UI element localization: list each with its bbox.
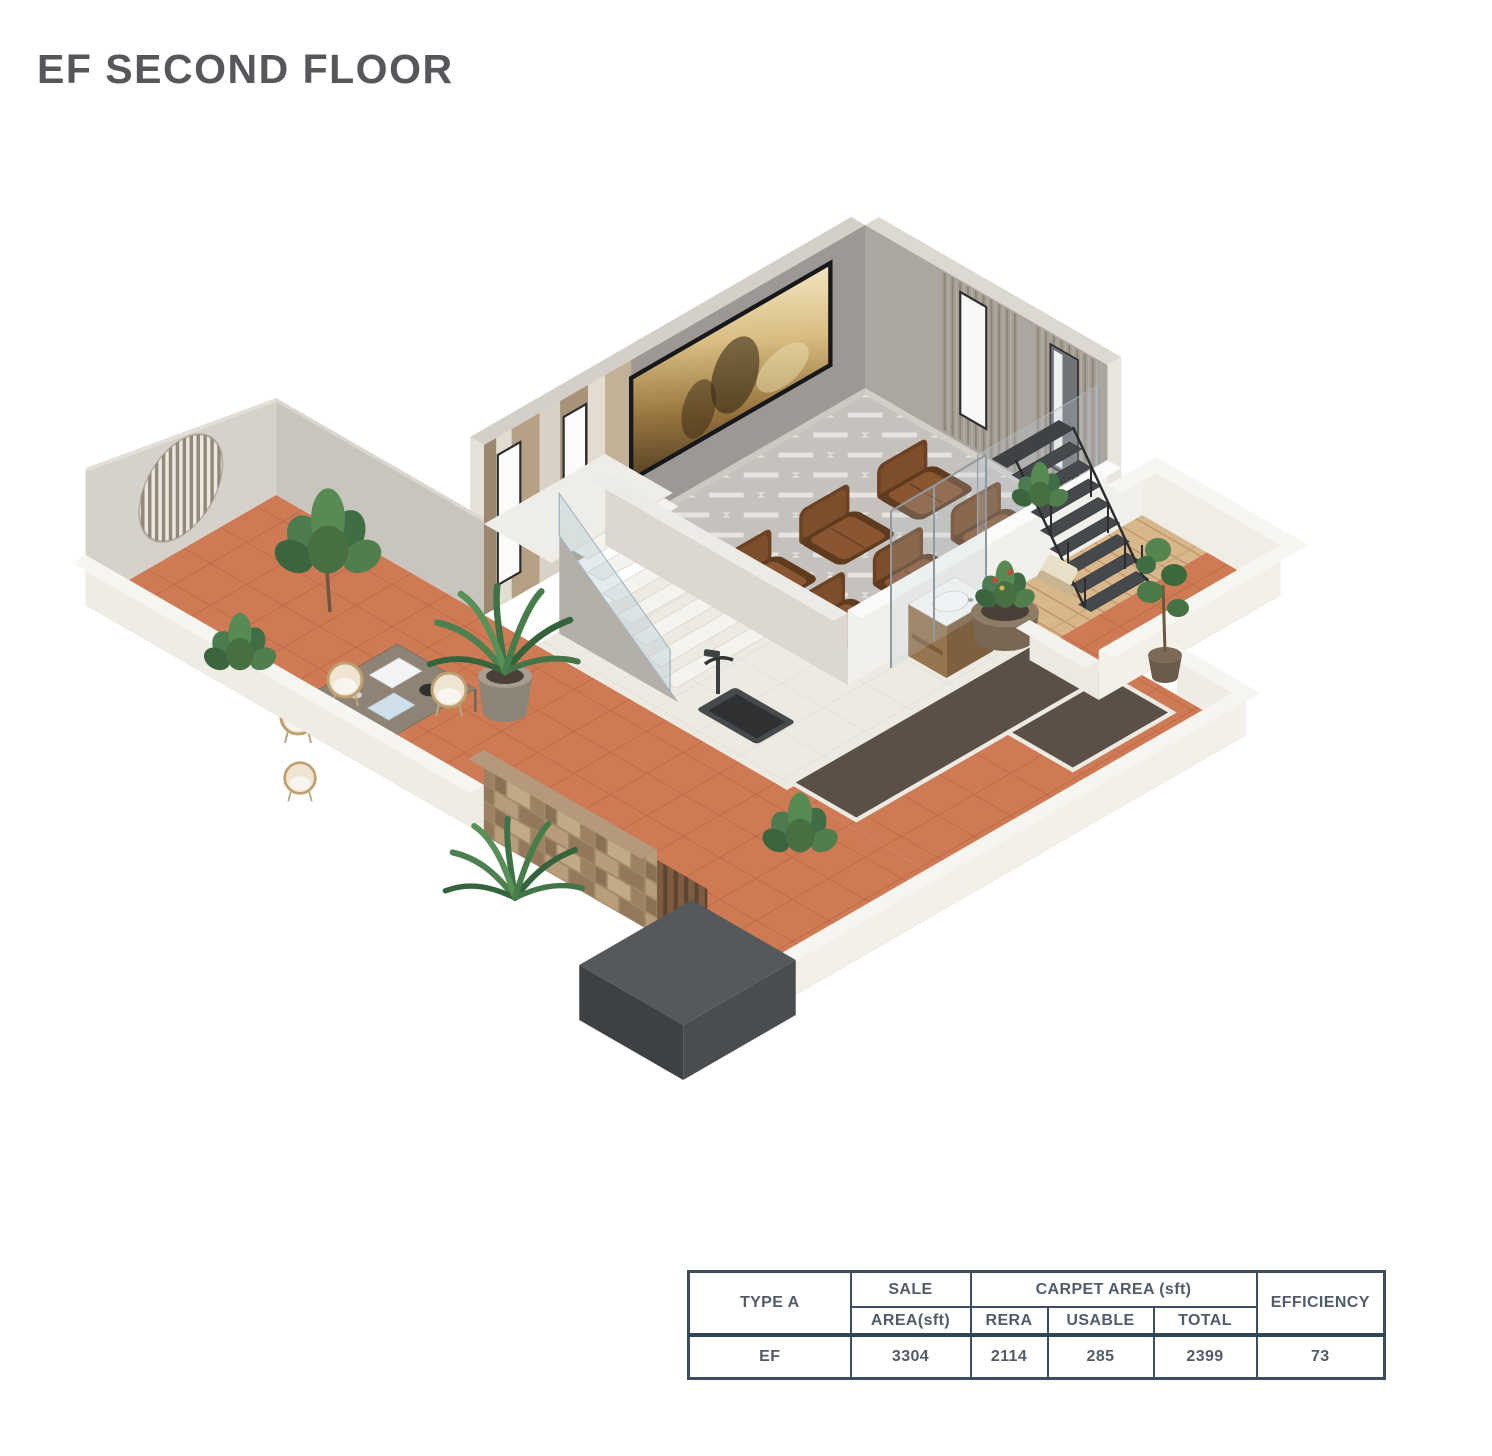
efficiency-value: 73 — [1257, 1335, 1385, 1379]
floorplan-render — [0, 0, 1492, 1456]
sale-header-top: SALE — [851, 1272, 971, 1308]
usable-header: USABLE — [1048, 1307, 1154, 1335]
sale-header-bottom: AREA(sft) — [851, 1307, 971, 1335]
usable-value: 285 — [1048, 1335, 1154, 1379]
total-header: TOTAL — [1154, 1307, 1257, 1335]
carpet-group-header: CARPET AREA (sft) — [971, 1272, 1257, 1308]
brochure-page: EF SECOND FLOOR — [0, 0, 1492, 1456]
efficiency-header: EFFICIENCY — [1257, 1272, 1385, 1336]
type-value: EF — [689, 1335, 851, 1379]
type-header: TYPE A — [689, 1272, 851, 1336]
window — [960, 292, 986, 429]
rera-header: RERA — [971, 1307, 1048, 1335]
area-spec-table: TYPE A SALE CARPET AREA (sft) EFFICIENCY… — [687, 1270, 1386, 1380]
sale-area-value: 3304 — [851, 1335, 971, 1379]
rera-value: 2114 — [971, 1335, 1048, 1379]
table-row: EF 3304 2114 285 2399 73 — [689, 1335, 1385, 1379]
total-value: 2399 — [1154, 1335, 1257, 1379]
